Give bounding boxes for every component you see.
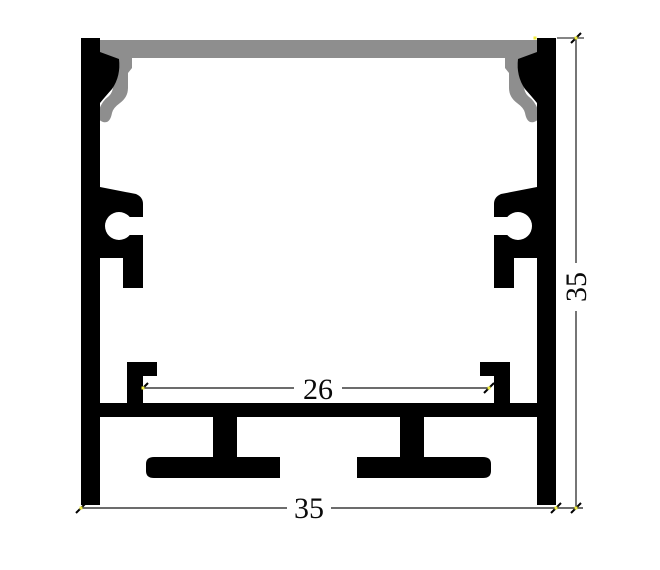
endpoint-marker (575, 37, 578, 40)
profile-drawing-svg: 26 35 35 (0, 0, 660, 570)
screw-port-slot-left (127, 217, 146, 235)
dim-label-overall-height: 35 (560, 272, 593, 302)
pcb-ledge-right (480, 362, 510, 403)
dimension-outer-width: 35 (76, 492, 583, 525)
pcb-ledge-left (127, 362, 157, 403)
endpoint-marker (534, 37, 537, 40)
endpoint-marker (80, 507, 83, 510)
diffuser-top-bar (100, 40, 537, 58)
mounting-rail-left-stem (213, 417, 237, 458)
endpoint-marker (142, 387, 145, 390)
profile-cross-section-drawing: 26 35 35 (0, 0, 660, 570)
endpoint-marker (575, 507, 578, 510)
aluminum-profile-body (81, 38, 556, 505)
right-wall (537, 38, 556, 505)
dim-label-outer-width: 35 (294, 492, 324, 525)
dim-label-inner-width: 26 (303, 373, 333, 406)
mounting-rail-left-foot (146, 457, 280, 478)
dimension-inner-width: 26 (138, 373, 494, 406)
diffuser-cover (98, 40, 540, 122)
endpoint-marker (555, 507, 558, 510)
dimension-annotations: 26 35 35 (76, 33, 593, 525)
left-wall (81, 38, 100, 505)
screw-port-slot-right (491, 217, 510, 235)
endpoint-marker (488, 387, 491, 390)
mounting-rail-right-stem (400, 417, 424, 458)
mounting-rail-right-foot (357, 457, 491, 478)
